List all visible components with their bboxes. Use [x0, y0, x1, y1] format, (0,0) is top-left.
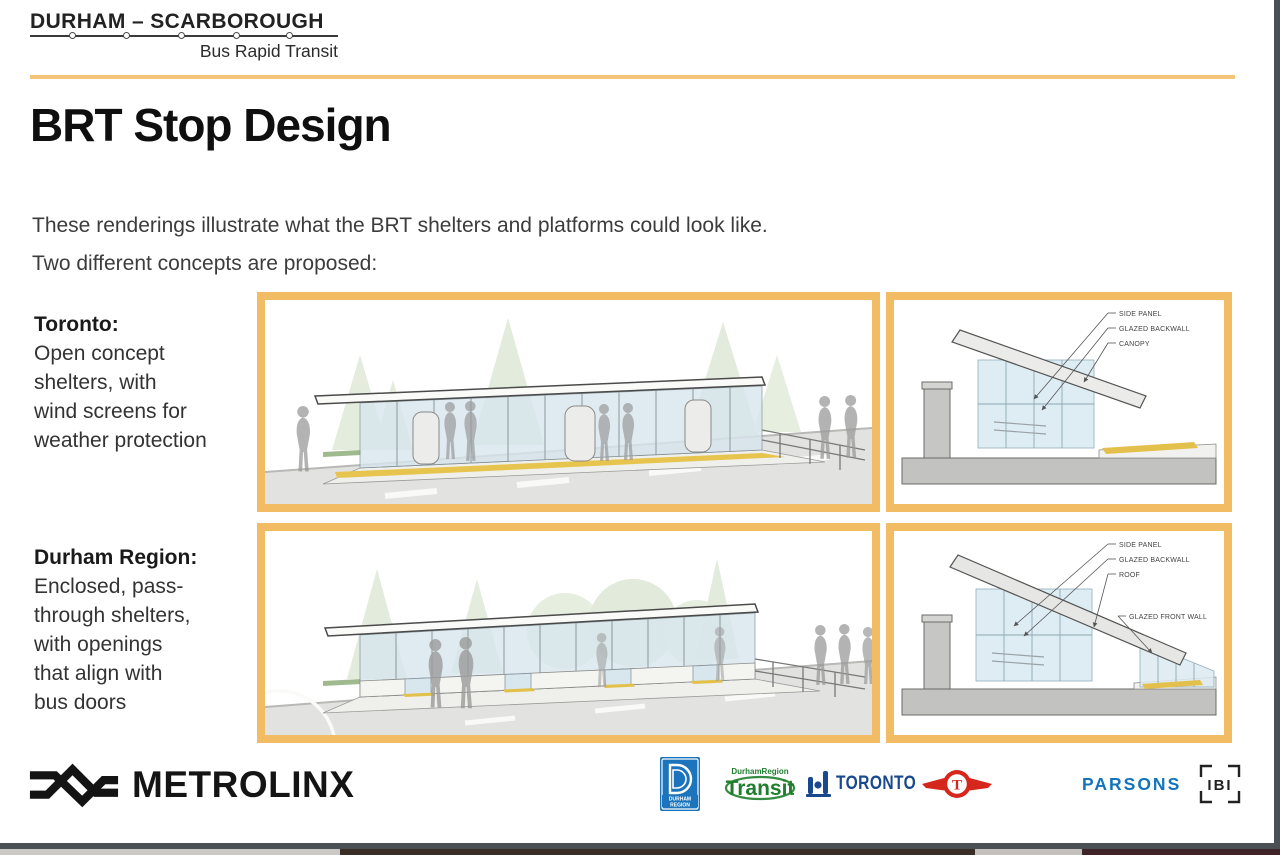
toronto-city-hall-icon: [806, 769, 831, 799]
toronto-logo: TORONTO: [806, 769, 934, 799]
toronto-section-drawing: SIDE PANEL GLAZED BACKWALL CANOPY: [894, 300, 1224, 504]
route-stop-icon: [123, 32, 130, 39]
durham-shelter-section-diagram: SIDE PANEL GLAZED BACKWALL ROOF GLAZED F…: [886, 523, 1232, 743]
concept-desc-line: shelters, with: [34, 368, 260, 397]
concept-desc-line: weather protection: [34, 426, 260, 455]
concept-label-durham: Durham Region: Enclosed, pass- through s…: [34, 543, 260, 717]
ttc-logo: T: [922, 767, 992, 803]
concept-name: Toronto:: [34, 310, 260, 339]
callout-label: SIDE PANEL: [1119, 542, 1162, 549]
callout-label: CANOPY: [1119, 341, 1150, 348]
ttc-logo-icon: T: [922, 767, 992, 803]
callout-label: GLAZED BACKWALL: [1119, 557, 1190, 564]
svg-text:IBI: IBI: [1207, 777, 1232, 794]
header-divider: [30, 75, 1235, 79]
callout-label: SIDE PANEL: [1119, 311, 1162, 318]
toronto-shelter-rendering: [257, 292, 880, 512]
durham-transit-logo: DurhamRegion Transit: [724, 764, 796, 806]
concept-desc-line: Open concept: [34, 339, 260, 368]
callout-label: GLAZED FRONT WALL: [1129, 614, 1207, 621]
metrolinx-logo: METROLINX: [28, 762, 354, 808]
concept-desc-line: that align with: [34, 659, 260, 688]
metrolinx-wordmark: METROLINX: [132, 764, 354, 806]
concept-desc-line: Enclosed, pass-: [34, 572, 260, 601]
bottom-strip-segment: [975, 849, 1082, 855]
transit-route-line-icon: [30, 35, 338, 37]
durham-section-drawing: SIDE PANEL GLAZED BACKWALL ROOF GLAZED F…: [894, 531, 1224, 735]
page-title: BRT Stop Design: [30, 98, 391, 152]
durham-region-logo-icon: DURHAM REGION: [660, 757, 700, 811]
durham-region-logo: DURHAM REGION: [660, 757, 700, 811]
route-stop-icon: [69, 32, 76, 39]
brand-subtitle: Bus Rapid Transit: [30, 41, 338, 62]
durham-transit-logo-icon: DurhamRegion Transit: [724, 764, 796, 806]
callout-label: ROOF: [1119, 572, 1140, 579]
svg-text:T: T: [952, 778, 962, 794]
toronto-shelter-section-diagram: SIDE PANEL GLAZED BACKWALL CANOPY: [886, 292, 1232, 512]
concept-desc-line: wind screens for: [34, 397, 260, 426]
bottom-strip-segment: [0, 849, 340, 855]
ibi-logo-icon: IBI: [1198, 763, 1242, 805]
window-edge-right: [1274, 0, 1280, 855]
parsons-logo: PARSONS: [1082, 774, 1181, 795]
durham-shelter-rendering: [257, 523, 880, 743]
brand-title: DURHAM – SCARBOROUGH: [30, 10, 324, 34]
concept-desc-line: through shelters,: [34, 601, 260, 630]
toronto-wordmark: TORONTO: [836, 773, 916, 795]
intro-line-1: These renderings illustrate what the BRT…: [32, 214, 768, 238]
toronto-rendering-drawing: [265, 300, 872, 504]
durham-rendering-drawing: [265, 531, 872, 735]
route-stop-icon: [233, 32, 240, 39]
concept-desc-line: bus doors: [34, 688, 260, 717]
concept-name: Durham Region:: [34, 543, 260, 572]
callout-label: GLAZED BACKWALL: [1119, 326, 1190, 333]
bottom-strip-segment: [1082, 849, 1280, 855]
ibi-logo: IBI: [1198, 763, 1242, 805]
svg-text:REGION: REGION: [670, 803, 690, 809]
concept-label-toronto: Toronto: Open concept shelters, with win…: [34, 310, 260, 455]
svg-text:Transit: Transit: [726, 777, 795, 800]
intro-line-2: Two different concepts are proposed:: [32, 252, 377, 276]
metrolinx-logo-icon: [28, 762, 120, 808]
route-stop-icon: [178, 32, 185, 39]
svg-text:DurhamRegion: DurhamRegion: [731, 767, 788, 776]
concept-desc-line: with openings: [34, 630, 260, 659]
bottom-strip-segment: [340, 849, 975, 855]
route-stop-icon: [286, 32, 293, 39]
